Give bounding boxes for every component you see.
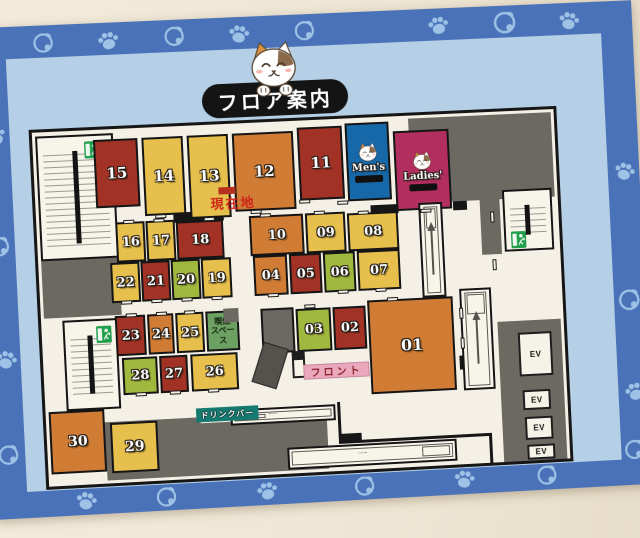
room-10: 10 bbox=[249, 214, 305, 257]
room-number: 30 bbox=[68, 434, 88, 449]
room-19: 19 bbox=[201, 257, 233, 299]
room-09: 09 bbox=[305, 212, 347, 254]
door-notch bbox=[156, 312, 167, 317]
wall-segment bbox=[453, 201, 467, 211]
bell-icon bbox=[162, 23, 187, 48]
paw-icon bbox=[424, 12, 452, 40]
escalator-arrow-icon bbox=[266, 381, 279, 447]
cat-face-icon bbox=[410, 149, 435, 171]
door-notch bbox=[314, 211, 325, 216]
room-number: 21 bbox=[146, 274, 165, 288]
room-number: 10 bbox=[267, 228, 286, 242]
door-notch bbox=[459, 308, 463, 319]
door-notch bbox=[375, 288, 386, 293]
door-notch bbox=[170, 390, 181, 395]
floor-map: 1514131211 Men's Ladies'1617182221201910… bbox=[29, 106, 574, 490]
door-notch bbox=[338, 289, 349, 294]
room-08: 08 bbox=[347, 211, 400, 251]
room-number: 23 bbox=[121, 328, 140, 342]
room-02: 02 bbox=[332, 306, 367, 351]
bell-icon bbox=[31, 30, 56, 55]
border-decorations bbox=[0, 0, 631, 28]
room-26: 26 bbox=[190, 352, 239, 391]
bell-icon bbox=[154, 484, 179, 509]
room-21: 21 bbox=[140, 260, 171, 302]
room-15: 15 bbox=[93, 138, 141, 208]
door-notch bbox=[121, 300, 132, 305]
paw-icon bbox=[253, 477, 282, 506]
room-number: 17 bbox=[152, 234, 171, 248]
room-info-badge bbox=[355, 174, 383, 182]
room-number: 14 bbox=[153, 168, 175, 184]
room-16: 16 bbox=[115, 221, 146, 263]
door-notch bbox=[304, 304, 315, 309]
door-notch bbox=[337, 200, 348, 205]
floor-guide-poster: フロア案内 1514131211 Men's Ladies'1617182221… bbox=[0, 0, 640, 520]
door-notch bbox=[184, 310, 195, 315]
elevator-2: EV bbox=[523, 389, 552, 410]
room-03: 03 bbox=[295, 307, 332, 352]
room-number: 09 bbox=[316, 226, 335, 240]
room-14: 14 bbox=[141, 136, 186, 216]
room-07: 07 bbox=[357, 249, 402, 291]
door-notch bbox=[490, 211, 494, 222]
room-ladies: Ladies' bbox=[393, 129, 452, 211]
bell-icon bbox=[623, 436, 640, 461]
room-number: 05 bbox=[296, 267, 315, 281]
room-number: 16 bbox=[121, 235, 140, 249]
door-notch bbox=[492, 259, 496, 270]
wall-segment bbox=[489, 433, 493, 463]
current-location-label: 現在地 bbox=[205, 193, 262, 212]
room-number: 28 bbox=[131, 369, 150, 383]
room-11: 11 bbox=[297, 126, 345, 201]
bell-icon bbox=[0, 234, 13, 259]
room-number: 26 bbox=[205, 365, 224, 379]
door-notch bbox=[420, 208, 431, 213]
room-17: 17 bbox=[145, 220, 176, 262]
room-28: 28 bbox=[122, 356, 159, 395]
elevator-4: EV bbox=[527, 443, 555, 459]
room-18: 18 bbox=[176, 219, 225, 259]
room-24: 24 bbox=[147, 313, 175, 354]
label-text: 現在地 bbox=[210, 191, 256, 212]
door-notch bbox=[136, 392, 147, 397]
room-05: 05 bbox=[289, 253, 323, 295]
room-29: 29 bbox=[110, 421, 160, 474]
elevator-3: EV bbox=[525, 416, 554, 440]
paw-icon bbox=[610, 157, 638, 185]
room-number: 19 bbox=[207, 271, 226, 285]
room-number: 24 bbox=[152, 327, 171, 341]
room-number: 18 bbox=[191, 233, 210, 247]
room-number: 15 bbox=[106, 165, 128, 181]
smoking-corner-wall bbox=[223, 308, 239, 323]
door-notch bbox=[153, 218, 164, 223]
room-number: 25 bbox=[181, 325, 200, 339]
paw-icon bbox=[556, 7, 582, 34]
room-30: 30 bbox=[49, 409, 108, 474]
room-22: 22 bbox=[110, 262, 141, 304]
bell-icon bbox=[616, 286, 640, 313]
label-text: ドリンクバー bbox=[200, 407, 254, 421]
room-info-badge bbox=[409, 183, 437, 191]
paw-icon bbox=[94, 26, 123, 55]
room-number: 11 bbox=[310, 155, 332, 171]
door-notch bbox=[208, 388, 219, 393]
front-counter bbox=[251, 342, 288, 390]
cat-mascot-icon bbox=[241, 38, 306, 99]
corridor-wall-right-strip bbox=[480, 199, 502, 255]
room-01: 01 bbox=[367, 296, 457, 394]
room-number: 27 bbox=[165, 367, 184, 381]
room-number: 20 bbox=[177, 272, 196, 286]
label-text: フロント bbox=[310, 362, 363, 380]
room-06: 06 bbox=[323, 251, 357, 293]
room-number: 07 bbox=[370, 263, 389, 277]
door-notch bbox=[126, 313, 137, 318]
room-label: Ladies' bbox=[403, 170, 443, 182]
stairwell-right bbox=[502, 188, 554, 252]
machine-top bbox=[294, 353, 303, 360]
room-number: 06 bbox=[330, 265, 349, 279]
room-number: 29 bbox=[125, 439, 145, 454]
cat-face-icon bbox=[355, 140, 380, 162]
room-number: 04 bbox=[261, 268, 280, 282]
escalator-mid bbox=[418, 202, 446, 298]
room-label: Men's bbox=[352, 162, 386, 174]
door-notch bbox=[268, 293, 279, 298]
door-notch bbox=[181, 297, 192, 302]
door-notch bbox=[260, 213, 271, 218]
elevator-1: EV bbox=[518, 331, 554, 376]
escalator-right bbox=[459, 287, 496, 390]
bell-icon bbox=[535, 462, 560, 487]
room-23: 23 bbox=[115, 315, 147, 357]
wall-segment bbox=[337, 402, 342, 436]
room-mens: Men's bbox=[344, 122, 392, 202]
stairwell-left bbox=[62, 318, 121, 411]
paw-icon bbox=[72, 487, 100, 515]
paw-icon bbox=[0, 346, 21, 375]
door-notch bbox=[460, 338, 464, 349]
exit-sign-icon bbox=[96, 325, 112, 343]
door-notch bbox=[387, 297, 398, 302]
door-notch bbox=[358, 210, 369, 215]
room-number: 02 bbox=[341, 321, 360, 335]
room-04: 04 bbox=[253, 254, 289, 296]
room-20: 20 bbox=[170, 259, 201, 301]
room-number: 12 bbox=[253, 163, 275, 179]
room-number: 08 bbox=[364, 224, 383, 238]
door-notch bbox=[299, 199, 310, 204]
room-number: 13 bbox=[198, 168, 220, 184]
paw-icon bbox=[451, 466, 477, 492]
door-notch bbox=[151, 299, 162, 304]
exit-sign-icon bbox=[511, 231, 527, 249]
paw-icon bbox=[621, 377, 640, 406]
room-number: 01 bbox=[401, 337, 424, 354]
room-27: 27 bbox=[159, 355, 189, 394]
bell-icon bbox=[491, 8, 519, 36]
smoking-label: スペース bbox=[208, 325, 238, 345]
room-25: 25 bbox=[175, 312, 205, 353]
room-number: 03 bbox=[305, 323, 324, 337]
escalator-plate bbox=[422, 445, 450, 456]
door-notch bbox=[123, 220, 134, 225]
front-desk-label: フロント bbox=[303, 361, 370, 379]
door-notch bbox=[204, 217, 215, 222]
door-notch bbox=[212, 296, 223, 301]
room-number: 22 bbox=[116, 275, 135, 289]
bell-icon bbox=[0, 442, 22, 467]
